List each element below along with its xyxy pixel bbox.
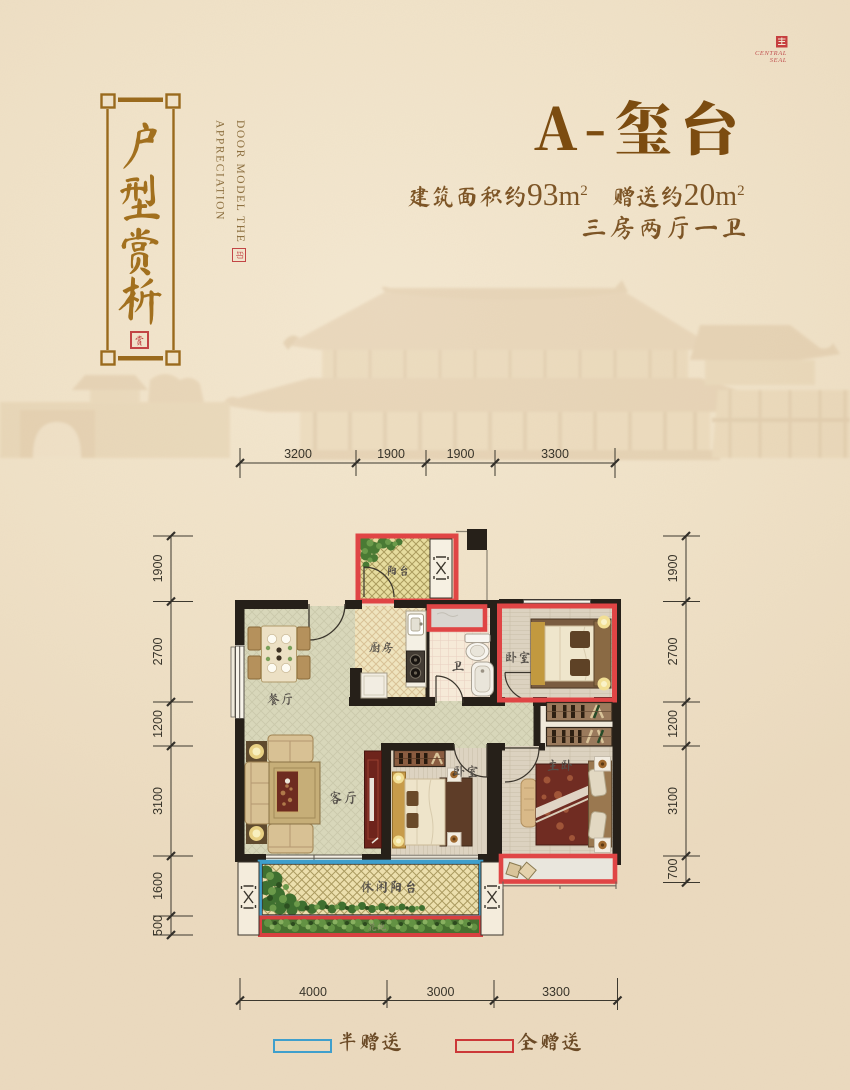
svg-text:3000: 3000 bbox=[427, 985, 455, 999]
svg-text:2700: 2700 bbox=[151, 638, 165, 666]
svg-text:500: 500 bbox=[151, 915, 165, 936]
svg-text:1200: 1200 bbox=[151, 710, 165, 738]
svg-text:3100: 3100 bbox=[666, 787, 680, 815]
svg-text:1600: 1600 bbox=[151, 872, 165, 900]
svg-text:3200: 3200 bbox=[284, 447, 312, 461]
svg-text:3100: 3100 bbox=[151, 787, 165, 815]
svg-text:1900: 1900 bbox=[666, 555, 680, 583]
svg-text:1900: 1900 bbox=[377, 447, 405, 461]
svg-text:1900: 1900 bbox=[447, 447, 475, 461]
svg-text:2700: 2700 bbox=[666, 638, 680, 666]
svg-text:1900: 1900 bbox=[151, 555, 165, 583]
svg-text:3300: 3300 bbox=[542, 985, 570, 999]
svg-text:3300: 3300 bbox=[541, 447, 569, 461]
svg-text:4000: 4000 bbox=[299, 985, 327, 999]
svg-text:1200: 1200 bbox=[666, 710, 680, 738]
svg-text:700: 700 bbox=[666, 859, 680, 880]
